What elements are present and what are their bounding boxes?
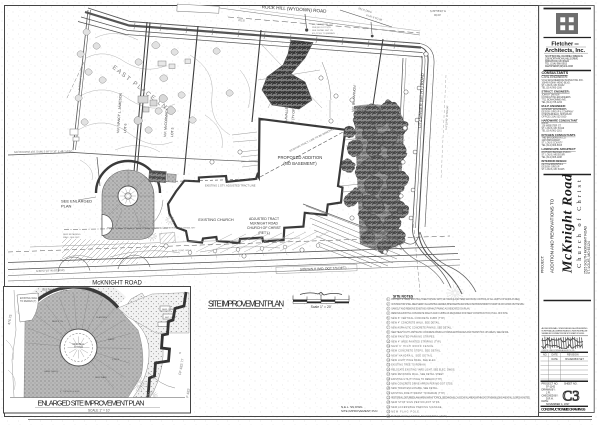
svg-text:NEW RETAINING: NEW RETAINING bbox=[63, 233, 81, 236]
svg-text:NEW STOP SIGN PER MO-DOT STDS.: NEW STOP SIGN PER MO-DOT STDS. bbox=[391, 402, 440, 404]
svg-text:WALL, SEE DET.: WALL, SEE DET. bbox=[63, 236, 80, 239]
svg-text:PROJECT:: PROJECT: bbox=[541, 255, 545, 273]
svg-text:VERIFIED BY CONTRACTOR PRIOR T: VERIFIED BY CONTRACTOR PRIOR TO START OF… bbox=[542, 332, 585, 335]
svg-text:EXISTING CHURCH: EXISTING CHURCH bbox=[198, 218, 233, 222]
svg-text:REVISION: REVISION bbox=[567, 353, 579, 356]
svg-text:CONSTRUCTION/BID DRAWINGS: CONSTRUCTION/BID DRAWINGS bbox=[541, 408, 586, 412]
svg-text:INTERIOR DESIGN: INTERIOR DESIGN bbox=[542, 159, 567, 163]
svg-text:ADJUSTED TRACT: ADJUSTED TRACT bbox=[249, 217, 279, 221]
svg-text:NEW HANDRAIL, SEE DETAIL.: NEW HANDRAIL, SEE DETAIL. bbox=[391, 354, 433, 357]
svg-text:ALIGN NORTH WALL OF NEW WING F: ALIGN NORTH WALL OF NEW WING FLUSH WITH … bbox=[542, 327, 588, 330]
svg-text:NEW 4" CONCRETE WALK, SEE DETA: NEW 4" CONCRETE WALK, SEE DETAIL. bbox=[391, 322, 440, 325]
svg-text:RESTORE ALL DISTURBED LAWN ARE: RESTORE ALL DISTURBED LAWN AREAS WITH 6"… bbox=[391, 397, 530, 400]
svg-text:SIDE WALK (MO DOT): SIDE WALK (MO DOT) bbox=[42, 289, 67, 292]
svg-text:PROPOSED ADDITION: PROPOSED ADDITION bbox=[278, 155, 323, 160]
svg-text:NEW ASPHALTIC CONCRETE PAVING,: NEW ASPHALTIC CONCRETE PAVING, SEE DETAI… bbox=[391, 326, 452, 329]
svg-text:CIVIL ENGINEER:: CIVIL ENGINEER: bbox=[542, 75, 568, 79]
svg-text:LOT 6: LOT 6 bbox=[123, 123, 128, 133]
svg-text:ST. LOUIS, MO 63105: ST. LOUIS, MO 63105 bbox=[542, 169, 566, 171]
svg-text:PROTECT & TREAT EXISTING TREE: PROTECT & TREAT EXISTING TREE TOPSOIL WI… bbox=[391, 298, 520, 301]
svg-text:4" TOPSOIL & SOD: 4" TOPSOIL & SOD bbox=[60, 391, 80, 393]
svg-text:FLETCHARCH (AT) AOL.COM: FLETCHARCH (AT) AOL.COM bbox=[545, 65, 573, 68]
svg-text:SEE DETAIL SHT C5: SEE DETAIL SHT C5 bbox=[312, 29, 334, 32]
svg-text:ST. LOUIS, MO 63124: ST. LOUIS, MO 63124 bbox=[587, 241, 591, 274]
svg-text:DATE: DATE bbox=[552, 358, 559, 361]
svg-text:S 89°58'20" E: S 89°58'20" E bbox=[430, 9, 446, 13]
svg-text:ISSUED/BID SET: ISSUED/BID SET bbox=[565, 358, 584, 361]
svg-text:SITE NOTES: SITE NOTES bbox=[393, 294, 414, 298]
svg-text:Fletcher ═: Fletcher ═ bbox=[551, 42, 578, 48]
svg-text:NEW LIGHT POLE BASE, SEE ELEC.: NEW LIGHT POLE BASE, SEE ELEC. bbox=[391, 359, 436, 362]
svg-text:RET. WALL: RET. WALL bbox=[165, 316, 177, 319]
svg-text:LOT 5: LOT 5 bbox=[170, 127, 175, 137]
svg-text:LANDSCAPE ARCHITECT: LANDSCAPE ARCHITECT bbox=[542, 147, 577, 151]
svg-text:McKNIGHT ROAD: McKNIGHT ROAD bbox=[92, 281, 142, 287]
svg-text:NEW WALK: NEW WALK bbox=[95, 376, 107, 379]
svg-text:EXISTING UTILITY POLE TO REMAI: EXISTING UTILITY POLE TO REMAIN (TYP.) bbox=[391, 378, 442, 381]
svg-text:EXISTING TREE TO REMAIN.: EXISTING TREE TO REMAIN. bbox=[391, 364, 426, 367]
svg-text:OFFICE USE LICENSE AUGUST 4, 1: OFFICE USE LICENSE AUGUST 4, 19... bbox=[542, 349, 576, 352]
svg-text:PLANTING: PLANTING bbox=[96, 316, 107, 319]
svg-text:EXISTING 1 STY. ADJUSTED TRACT: EXISTING 1 STY. ADJUSTED TRACT LINE bbox=[205, 184, 256, 188]
svg-text:RELOCATE EXISTING YARD LIGHT,: RELOCATE EXISTING YARD LIGHT, SEE ELEC. … bbox=[391, 368, 455, 371]
svg-text:DATE: DATE bbox=[552, 353, 559, 356]
svg-text:STEPS: STEPS bbox=[112, 359, 120, 361]
svg-text:SHEET NO.: SHEET NO. bbox=[564, 383, 578, 386]
svg-text:STRUCT. ENGINEER:: STRUCT. ENGINEER: bbox=[542, 90, 570, 94]
svg-text:ADDITION AND RENOVATIONS TO: ADDITION AND RENOVATIONS TO bbox=[550, 198, 555, 273]
svg-text:NEW CONC: NEW CONC bbox=[162, 309, 175, 311]
svg-text:90.00': 90.00' bbox=[434, 13, 441, 17]
svg-text:NEW RETAINING WALL, SEE DETAIL: NEW RETAINING WALL, SEE DETAIL SHEET. bbox=[391, 373, 444, 376]
svg-text:CONTRACTOR SHALL FIELD VERIFY: CONTRACTOR SHALL FIELD VERIFY ALL EXISTI… bbox=[391, 303, 524, 306]
svg-text:PLAN: PLAN bbox=[61, 204, 72, 209]
svg-text:McKNIGHT ROAD: McKNIGHT ROAD bbox=[250, 222, 279, 226]
svg-text:MATCH NEW GRADES TO EXISTING (: MATCH NEW GRADES TO EXISTING (TYP.) bbox=[391, 415, 447, 418]
svg-text:NO.: NO. bbox=[543, 353, 548, 356]
svg-text:202.5': 202.5' bbox=[238, 18, 246, 23]
svg-text:SITE IMPROVEMENT PLAN: SITE IMPROVEMENT PLAN bbox=[208, 300, 284, 309]
svg-text:NORTH WALL. ALL DIMENSIONS AND: NORTH WALL. ALL DIMENSIONS AND CONDITION… bbox=[542, 330, 589, 333]
svg-text:TOWER: TOWER bbox=[74, 346, 83, 349]
svg-text:NEW CONCRETE STEPS, SEE DETAIL: NEW CONCRETE STEPS, SEE DETAIL. bbox=[391, 350, 441, 353]
svg-text:HARDWARE CONSULTANT: HARDWARE CONSULTANT bbox=[542, 118, 578, 122]
svg-text:M.E.P. ENGINEER:: M.E.P. ENGINEER: bbox=[542, 104, 566, 108]
svg-text:NEW 4" TH: NEW 4" TH bbox=[52, 321, 64, 323]
svg-text:Church of Christ: Church of Christ bbox=[576, 179, 583, 268]
svg-text:NEW PAINTED PARKING STRIPES.: NEW PAINTED PARKING STRIPES. bbox=[391, 336, 435, 339]
svg-text:EX. POLE TO REMAIN: EX. POLE TO REMAIN bbox=[312, 32, 335, 35]
svg-text:C3: C3 bbox=[563, 389, 580, 405]
svg-text:Scale 1" = 20': Scale 1" = 20' bbox=[311, 305, 332, 309]
svg-text:TO REMAIN (T): TO REMAIN (T) bbox=[20, 300, 37, 303]
svg-text:REMOVE EXISTING CONCRETE WALKS: REMOVE EXISTING CONCRETE WALKS AND CURBS… bbox=[391, 312, 508, 315]
svg-text:NEW CONCRETE DRIVE APRON PER M: NEW CONCRETE DRIVE APRON PER MO-DOT STDS… bbox=[391, 382, 453, 385]
svg-text:NEW TRASH ENCLOSURE, SEE DETAI: NEW TRASH ENCLOSURE, SEE DETAIL. bbox=[391, 387, 438, 390]
svg-text:SCALE 1" = 10': SCALE 1" = 10' bbox=[88, 409, 110, 413]
svg-text:NEW FLAG POLE.: NEW FLAG POLE. bbox=[391, 411, 420, 414]
svg-text:NEW 6' HIGH WOOD FENCE.: NEW 6' HIGH WOOD FENCE. bbox=[391, 346, 434, 348]
svg-text:RAMP: RAMP bbox=[108, 338, 115, 341]
svg-text:MP. NEW CURB CUT: MP. NEW CURB CUT bbox=[312, 24, 334, 26]
svg-text:KITCHEN CONSULTANTS: KITCHEN CONSULTANTS bbox=[542, 133, 576, 137]
svg-text:SITE IMPROVEMENT PLN: SITE IMPROVEMENT PLN bbox=[341, 409, 377, 413]
svg-text:ENLARGED SITE IMPROVEMENT PLAN: ENLARGED SITE IMPROVEMENT PLAN bbox=[38, 398, 145, 407]
svg-text:EXISTING FIRE HYDRANT TO REMAI: EXISTING FIRE HYDRANT TO REMAIN (TYP.) bbox=[391, 392, 445, 395]
svg-text:NEW 6" VERTICAL CONCRETE CURB: NEW 6" VERTICAL CONCRETE CURB (TYP.) bbox=[391, 317, 445, 320]
svg-text:CHURCH OF CHRIST: CHURCH OF CHRIST bbox=[247, 226, 281, 230]
svg-text:NEW HEAVY DUTY ASPHALTIC CONCR: NEW HEAVY DUTY ASPHALTIC CONCRETE PAVING… bbox=[391, 331, 509, 334]
svg-text:NEW 4" WIDE PAINTED STRIPING (: NEW 4" WIDE PAINTED STRIPING (TYP.) bbox=[391, 340, 441, 343]
svg-text:SAWCUT AND REMOVE EXISTING ASP: SAWCUT AND REMOVE EXISTING ASPHALT PAVIN… bbox=[391, 308, 470, 311]
svg-text:NEW 4" CONC. WALK (SLOPE TO DR: NEW 4" CONC. WALK (SLOPE TO DRAIN) (TYP)… bbox=[107, 227, 196, 230]
svg-text:EXISTING WALL: EXISTING WALL bbox=[20, 297, 38, 300]
svg-text:McKnight Road: McKnight Road bbox=[561, 173, 576, 274]
svg-text:LAWN (SEED): LAWN (SEED) bbox=[44, 370, 59, 373]
svg-text:PER MO DOT STD: PER MO DOT STD bbox=[312, 27, 331, 29]
svg-text:NEW ACCESSIBLE PARKING SIGNAGE: NEW ACCESSIBLE PARKING SIGNAGE. bbox=[391, 406, 442, 409]
